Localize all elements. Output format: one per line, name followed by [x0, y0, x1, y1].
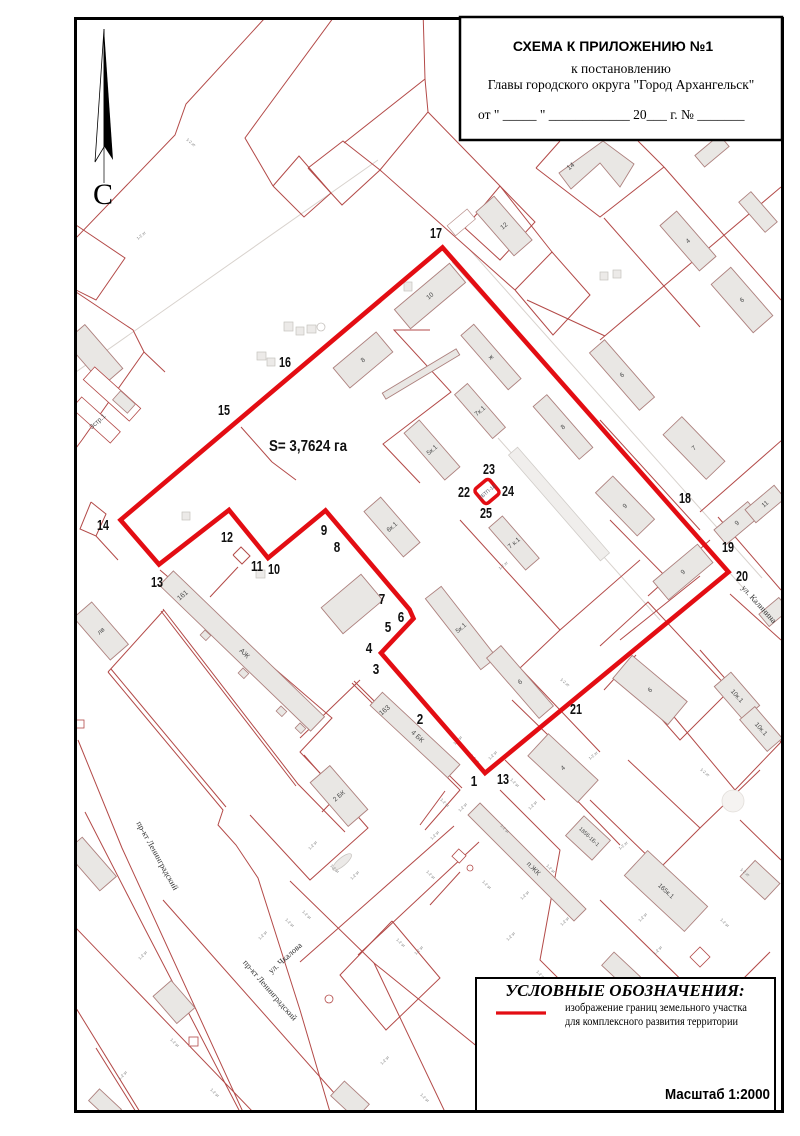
svg-text:21: 21 [570, 701, 582, 718]
svg-text:18: 18 [679, 490, 691, 507]
svg-text:7: 7 [379, 591, 386, 608]
svg-text:16: 16 [279, 354, 291, 371]
svg-text:10: 10 [268, 561, 280, 578]
svg-text:24: 24 [502, 483, 514, 500]
svg-text:3: 3 [373, 661, 380, 678]
svg-text:23: 23 [483, 461, 495, 478]
svg-text:изображение границ земельного: изображение границ земельного участка [565, 1000, 748, 1014]
svg-text:13: 13 [497, 771, 509, 788]
svg-text:1: 1 [471, 773, 478, 790]
svg-text:S= 3,7624 га: S= 3,7624 га [269, 438, 347, 455]
svg-text:4: 4 [366, 640, 373, 657]
svg-text:от " _____ " ____________ 20__: от " _____ " ____________ 20___ г. № ___… [478, 107, 745, 122]
svg-text:6: 6 [398, 609, 405, 626]
svg-text:для комплексного развития терр: для комплексного развития территории [565, 1014, 738, 1028]
svg-text:19: 19 [722, 539, 734, 556]
svg-text:8: 8 [334, 539, 341, 556]
svg-text:17: 17 [430, 225, 442, 242]
svg-text:14: 14 [97, 517, 109, 534]
svg-text:5: 5 [385, 619, 392, 636]
svg-text:9: 9 [321, 522, 328, 539]
svg-text:к постановлению: к постановлению [571, 61, 671, 76]
svg-text:УСЛОВНЫЕ ОБОЗНАЧЕНИЯ:: УСЛОВНЫЕ ОБОЗНАЧЕНИЯ: [505, 981, 744, 1000]
svg-text:Главы городского округа "Город: Главы городского округа "Город Архангель… [488, 77, 755, 92]
svg-text:Масштаб 1:2000: Масштаб 1:2000 [665, 1087, 770, 1103]
svg-text:13: 13 [151, 574, 163, 591]
svg-text:11: 11 [251, 558, 263, 575]
svg-text:25: 25 [480, 505, 492, 522]
svg-text:2: 2 [417, 711, 424, 728]
svg-text:12: 12 [221, 529, 233, 546]
svg-text:С: С [93, 178, 113, 211]
svg-text:22: 22 [458, 484, 470, 501]
svg-text:15: 15 [218, 402, 230, 419]
svg-text:СХЕМА К ПРИЛОЖЕНИЮ №1: СХЕМА К ПРИЛОЖЕНИЮ №1 [513, 38, 713, 54]
